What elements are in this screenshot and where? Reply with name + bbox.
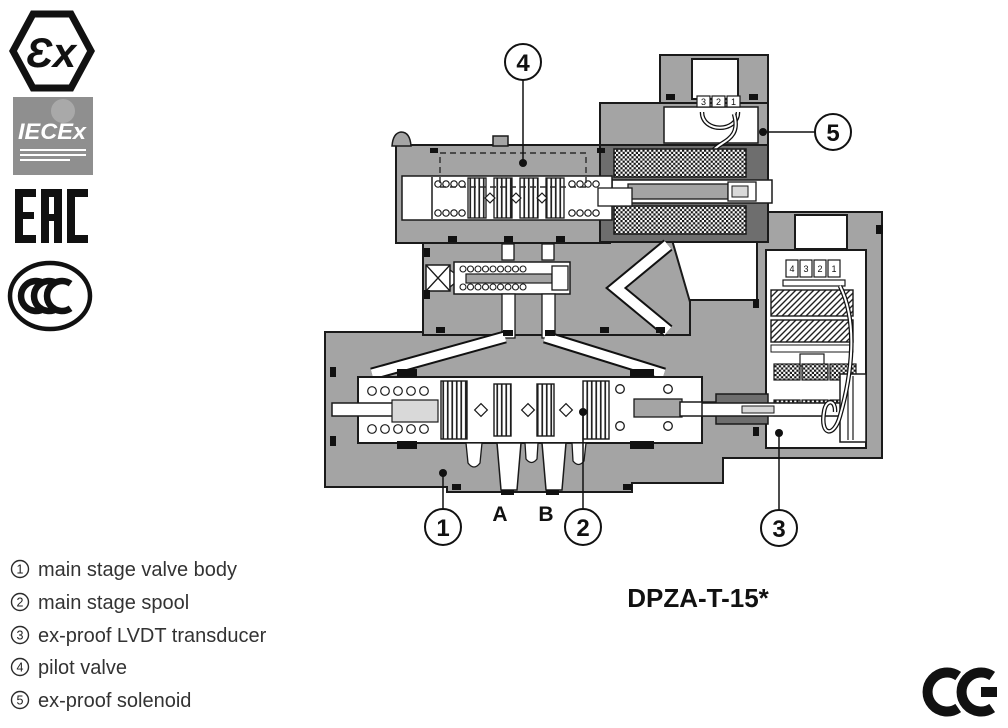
valve-cross-section (325, 55, 883, 495)
lvdt-core-rod (702, 403, 862, 416)
solenoid-plunger (628, 184, 728, 199)
iecex-text: IECEx (18, 119, 87, 144)
pilot-channel-a (502, 244, 514, 260)
legend-label-1: main stage valve body (38, 559, 237, 581)
port-b-channel (542, 443, 566, 490)
callout-4-number: 4 (516, 50, 530, 77)
pilot-dome (392, 132, 411, 146)
solenoid-plunger-inner (732, 186, 748, 197)
solenoid-terminal-2: 2 (716, 97, 721, 107)
legend-item-4: 4 pilot valve (12, 657, 127, 679)
legend: 1 main stage valve body 2 main stage spo… (12, 559, 267, 712)
lvdt-core (742, 406, 774, 413)
main-spring-seat (392, 400, 438, 422)
callout-1-number: 1 (436, 515, 449, 542)
pilot-tab (493, 136, 508, 146)
lvdt-terminal-1: 1 (831, 264, 836, 274)
legend-number-5: 5 (17, 694, 24, 708)
ce-mark (928, 673, 997, 712)
port-a-channel (497, 443, 521, 490)
lvdt-terminal-4: 4 (789, 264, 794, 274)
ccc-logo (10, 263, 90, 329)
solenoid-coil-upper (614, 149, 746, 177)
pilot-channel-b (542, 244, 554, 260)
legend-number-1: 1 (17, 563, 24, 577)
legend-item-1: 1 main stage valve body (12, 559, 238, 581)
lvdt-pcb-block-1 (771, 290, 853, 316)
callout-5: 5 (759, 114, 851, 150)
cartridge-rod (466, 274, 552, 283)
atex-ex-logo: Ɛx (13, 14, 91, 88)
callout-5-number: 5 (826, 120, 839, 147)
ce-letter-c (928, 673, 959, 712)
legend-label-4: pilot valve (38, 657, 127, 679)
cartridge-seat (552, 266, 568, 290)
blind-gallery-3 (572, 443, 586, 465)
legend-item-2: 2 main stage spool (12, 592, 190, 614)
datasheet-figure: Ɛx IECEx (0, 0, 1008, 728)
legend-label-5: ex-proof solenoid (38, 690, 191, 712)
lvdt-terminal-2: 2 (817, 264, 822, 274)
lvdt-gasket (771, 345, 853, 352)
eac-logo (15, 189, 88, 243)
callout-3-number: 3 (772, 516, 785, 543)
model-code: DPZA-T-15* (627, 583, 769, 613)
solenoid-terminal-3: 3 (701, 97, 706, 107)
blind-gallery-1 (466, 443, 482, 467)
iecex-logo: IECEx (13, 97, 93, 175)
blind-gallery-2 (525, 443, 538, 463)
lvdt-housing-window (795, 215, 847, 249)
lvdt-pcb-block-2 (771, 320, 853, 342)
callout-2-number: 2 (576, 515, 589, 542)
atex-ex-text: Ɛx (26, 29, 78, 76)
lvdt-terminal-3: 3 (803, 264, 808, 274)
port-label-b: B (538, 503, 553, 526)
legend-number-4: 4 (17, 661, 24, 675)
legend-label-3: ex-proof LVDT transducer (38, 625, 267, 647)
legend-item-5: 5 ex-proof solenoid (12, 690, 192, 712)
spool-end-plug (634, 399, 682, 417)
legend-item-3: 3 ex-proof LVDT transducer (12, 625, 267, 647)
solenoid-housing-window (692, 59, 738, 99)
legend-number-2: 2 (17, 596, 24, 610)
solenoid-coil-lower (614, 206, 746, 234)
solenoid-terminal-1: 1 (731, 97, 736, 107)
pilot-push-rod (598, 188, 632, 206)
legend-label-2: main stage spool (38, 592, 189, 614)
legend-number-3: 3 (17, 629, 24, 643)
port-label-a: A (492, 503, 507, 526)
